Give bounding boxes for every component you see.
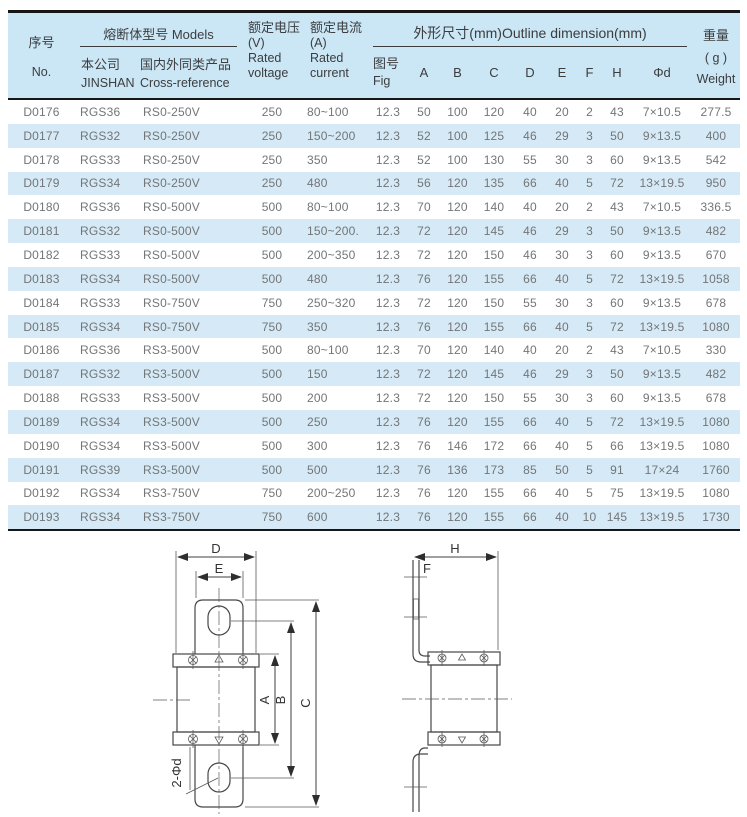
table-cell: 135: [475, 172, 513, 196]
dim-label-h: H: [450, 542, 459, 556]
table-cell: 72: [408, 219, 440, 243]
table-cell: 500: [242, 410, 302, 434]
table-cell: 17×24: [632, 458, 692, 482]
header-rated-voltage: 额定电压 (V) Rated voltage: [242, 13, 302, 98]
table-cell: 120: [440, 195, 475, 219]
header-voltage-zh: 额定电压: [248, 20, 302, 36]
dim-label-c: C: [298, 698, 313, 707]
table-cell: 46: [513, 219, 547, 243]
table-cell: 250: [242, 100, 302, 124]
rivet-marks: [189, 651, 248, 748]
table-cell: 10: [577, 505, 602, 529]
header-voltage-en1: Rated: [248, 51, 302, 66]
table-cell: 155: [475, 482, 513, 506]
table-cell: 46: [513, 362, 547, 386]
table-cell: 3: [577, 362, 602, 386]
table-cell: 70: [408, 338, 440, 362]
table-cell: 120: [440, 505, 475, 529]
table-cell: 72: [408, 386, 440, 410]
slot-edge-mark: [414, 599, 419, 619]
table-cell: 5: [577, 482, 602, 506]
table-cell: 66: [513, 482, 547, 506]
table-cell: RGS33: [75, 148, 138, 172]
table-cell: 155: [475, 410, 513, 434]
table-row: D0189RGS34RS3-500V50025012.3761201556640…: [8, 410, 740, 434]
header-weight: 重量 ( g ) Weight: [692, 13, 740, 98]
dim-label-f: F: [423, 561, 431, 576]
table-cell: RS0-250V: [138, 100, 242, 124]
table-cell: 150: [475, 291, 513, 315]
table-cell: RS3-500V: [138, 338, 242, 362]
table-cell: 30: [547, 148, 577, 172]
table-cell: 50: [602, 362, 632, 386]
table-cell: 146: [440, 434, 475, 458]
table-cell: 91: [602, 458, 632, 482]
table-cell: 150~200: [302, 124, 368, 148]
table-cell: 150~200.: [302, 219, 368, 243]
fuse-body-side: [431, 665, 497, 732]
table-cell: RGS34: [75, 172, 138, 196]
table-cell: 40: [547, 315, 577, 339]
fuse-body: [177, 667, 255, 732]
table-row: D0180RGS36RS0-500V50080~10012.3701201404…: [8, 195, 740, 219]
table-cell: 300: [302, 434, 368, 458]
table-cell: D0183: [8, 267, 75, 291]
table-cell: RGS32: [75, 362, 138, 386]
outline-drawings: D E: [0, 540, 747, 817]
table-cell: 9×13.5: [632, 219, 692, 243]
side-view-drawing: H F: [400, 542, 565, 817]
top-end-cap-side: [428, 652, 500, 665]
header-current-en1: Rated: [310, 51, 368, 66]
table-cell: 3: [577, 148, 602, 172]
table-cell: RS0-250V: [138, 148, 242, 172]
table-cell: 40: [547, 434, 577, 458]
table-cell: 13×19.5: [632, 315, 692, 339]
table-cell: 12.3: [368, 434, 408, 458]
table-cell: 155: [475, 267, 513, 291]
table-cell: 72: [408, 243, 440, 267]
table-cell: RGS36: [75, 100, 138, 124]
table-cell: 7×10.5: [632, 195, 692, 219]
table-cell: RS3-500V: [138, 386, 242, 410]
table-cell: 12.3: [368, 243, 408, 267]
header-models-group: 熔断体型号 Models: [80, 13, 237, 47]
table-cell: 9×13.5: [632, 362, 692, 386]
header-dim-b: B: [440, 47, 475, 98]
table-cell: 125: [475, 124, 513, 148]
table-cell: RS0-500V: [138, 243, 242, 267]
table-cell: 1080: [692, 315, 740, 339]
header-no: 序号 No.: [8, 13, 75, 98]
table-cell: RGS34: [75, 434, 138, 458]
table-cell: 500: [242, 338, 302, 362]
table-cell: RGS34: [75, 505, 138, 529]
table-cell: RS3-500V: [138, 458, 242, 482]
table-cell: D0182: [8, 243, 75, 267]
table-cell: 55: [513, 386, 547, 410]
table-cell: 1058: [692, 267, 740, 291]
table-cell: 12.3: [368, 315, 408, 339]
dim-label-a: A: [257, 695, 272, 704]
table-cell: 40: [513, 100, 547, 124]
table-cell: 72: [408, 291, 440, 315]
table-cell: 5: [577, 172, 602, 196]
table-cell: 120: [440, 172, 475, 196]
fuse-spec-table: 序号 No. 熔断体型号 Models 本公司 JINSHAN 国内外同类产品 …: [8, 10, 740, 531]
table-row: D0183RGS34RS0-500V50048012.3761201556640…: [8, 267, 740, 291]
table-cell: RS0-250V: [138, 172, 242, 196]
table-cell: 120: [440, 243, 475, 267]
header-dim-e: E: [547, 47, 577, 98]
table-cell: 3: [577, 243, 602, 267]
table-cell: 482: [692, 219, 740, 243]
table-cell: 40: [547, 410, 577, 434]
table-row: D0181RGS32RS0-500V500150~200.12.37212014…: [8, 219, 740, 243]
table-cell: 120: [440, 267, 475, 291]
table-cell: D0189: [8, 410, 75, 434]
table-cell: 600: [302, 505, 368, 529]
table-cell: 5: [577, 410, 602, 434]
table-cell: D0180: [8, 195, 75, 219]
table-cell: D0184: [8, 291, 75, 315]
table-cell: 1080: [692, 482, 740, 506]
table-row: D0177RGS32RS0-250V250150~20012.352100125…: [8, 124, 740, 148]
table-cell: RS3-500V: [138, 434, 242, 458]
table-cell: 200~350: [302, 243, 368, 267]
header-weight-en: Weight: [697, 72, 736, 86]
table-row: D0184RGS33RS0-750V750250~32012.372120150…: [8, 291, 740, 315]
table-cell: 750: [242, 482, 302, 506]
header-rated-current: 额定电流 (A) Rated current: [302, 13, 368, 98]
table-cell: 13×19.5: [632, 505, 692, 529]
header-fig: 图号 Fig: [368, 47, 408, 98]
table-cell: 150: [475, 386, 513, 410]
table-cell: 145: [475, 219, 513, 243]
table-cell: 120: [475, 100, 513, 124]
table-cell: RGS34: [75, 315, 138, 339]
table-cell: RGS34: [75, 410, 138, 434]
table-cell: 52: [408, 124, 440, 148]
table-cell: 13×19.5: [632, 172, 692, 196]
header-company-en: JINSHAN: [81, 76, 138, 90]
table-cell: 80~100: [302, 338, 368, 362]
dim-label-d: D: [211, 542, 220, 556]
table-cell: D0191: [8, 458, 75, 482]
table-cell: RGS36: [75, 338, 138, 362]
catalog-page: 序号 No. 熔断体型号 Models 本公司 JINSHAN 国内外同类产品 …: [0, 0, 747, 817]
table-cell: 40: [547, 172, 577, 196]
table-cell: 20: [547, 195, 577, 219]
table-cell: 5: [577, 434, 602, 458]
table-cell: 76: [408, 267, 440, 291]
table-cell: RGS33: [75, 386, 138, 410]
table-cell: 55: [513, 148, 547, 172]
table-cell: 2: [577, 195, 602, 219]
table-cell: 13×19.5: [632, 267, 692, 291]
table-cell: 72: [602, 267, 632, 291]
table-cell: 678: [692, 291, 740, 315]
table-cell: 60: [602, 148, 632, 172]
front-view-drawing: D E: [138, 542, 378, 817]
table-cell: 75: [602, 482, 632, 506]
table-cell: 66: [513, 315, 547, 339]
table-cell: 76: [408, 315, 440, 339]
header-voltage-unit: (V): [248, 36, 302, 51]
table-cell: 12.3: [368, 410, 408, 434]
table-cell: 80~100: [302, 100, 368, 124]
table-cell: 60: [602, 291, 632, 315]
table-cell: 66: [513, 434, 547, 458]
table-cell: 9×13.5: [632, 386, 692, 410]
table-cell: 120: [440, 219, 475, 243]
header-no-en: No.: [32, 65, 51, 79]
table-cell: 3: [577, 291, 602, 315]
table-cell: 12.3: [368, 124, 408, 148]
table-cell: D0181: [8, 219, 75, 243]
table-cell: 750: [242, 505, 302, 529]
table-cell: 76: [408, 434, 440, 458]
table-cell: RS0-500V: [138, 195, 242, 219]
table-cell: 12.3: [368, 338, 408, 362]
table-cell: 1760: [692, 458, 740, 482]
table-cell: 250: [302, 410, 368, 434]
table-cell: 9×13.5: [632, 148, 692, 172]
header-dim-phid: Φd: [632, 47, 692, 98]
table-cell: RS3-500V: [138, 410, 242, 434]
table-cell: 80~100: [302, 195, 368, 219]
table-cell: 72: [602, 410, 632, 434]
table-row: D0182RGS33RS0-500V500200~35012.372120150…: [8, 243, 740, 267]
table-cell: 5: [577, 315, 602, 339]
table-row: D0187RGS32RS3-500V50015012.3721201454629…: [8, 362, 740, 386]
header-company: 本公司 JINSHAN: [75, 47, 138, 98]
table-cell: 12.3: [368, 458, 408, 482]
table-cell: 46: [513, 243, 547, 267]
table-cell: 76: [408, 458, 440, 482]
table-cell: D0187: [8, 362, 75, 386]
table-cell: 155: [475, 315, 513, 339]
table-row: D0179RGS34RS0-250V25048012.3561201356640…: [8, 172, 740, 196]
table-cell: RGS34: [75, 267, 138, 291]
table-cell: RGS32: [75, 219, 138, 243]
table-cell: 40: [513, 338, 547, 362]
table-cell: RS0-750V: [138, 315, 242, 339]
header-crossref-zh: 国内外同类产品: [140, 54, 242, 73]
header-voltage-en2: voltage: [248, 66, 302, 81]
table-cell: 750: [242, 315, 302, 339]
table-cell: 7×10.5: [632, 338, 692, 362]
table-cell: 12.3: [368, 362, 408, 386]
table-cell: 46: [513, 124, 547, 148]
table-row: D0188RGS33RS3-500V50020012.3721201505530…: [8, 386, 740, 410]
table-cell: 12.3: [368, 148, 408, 172]
table-body: D0176RGS36RS0-250V25080~10012.3501001204…: [8, 100, 740, 531]
table-cell: 400: [692, 124, 740, 148]
table-cell: 480: [302, 267, 368, 291]
header-weight-unit: ( g ): [705, 51, 727, 65]
table-cell: D0178: [8, 148, 75, 172]
table-cell: 130: [475, 148, 513, 172]
table-cell: 1080: [692, 410, 740, 434]
table-cell: 13×19.5: [632, 482, 692, 506]
table-cell: 13×19.5: [632, 434, 692, 458]
table-cell: 76: [408, 505, 440, 529]
table-row: D0190RGS34RS3-500V50030012.3761461726640…: [8, 434, 740, 458]
table-cell: 250: [242, 148, 302, 172]
table-cell: 12.3: [368, 291, 408, 315]
table-cell: 120: [440, 338, 475, 362]
bottom-blade-edge: [413, 754, 428, 812]
table-cell: 52: [408, 148, 440, 172]
table-row: D0176RGS36RS0-250V25080~10012.3501001204…: [8, 100, 740, 124]
table-cell: 30: [547, 386, 577, 410]
table-cell: 350: [302, 315, 368, 339]
table-cell: 29: [547, 362, 577, 386]
table-cell: 30: [547, 243, 577, 267]
table-cell: 145: [602, 505, 632, 529]
table-cell: 43: [602, 338, 632, 362]
table-cell: 3: [577, 219, 602, 243]
table-cell: 100: [440, 148, 475, 172]
table-cell: 173: [475, 458, 513, 482]
table-cell: 50: [408, 100, 440, 124]
table-cell: 140: [475, 195, 513, 219]
table-cell: 330: [692, 338, 740, 362]
table-cell: 140: [475, 338, 513, 362]
table-cell: 500: [242, 243, 302, 267]
table-cell: 72: [408, 362, 440, 386]
header-dim-c: C: [475, 47, 513, 98]
table-cell: 66: [513, 267, 547, 291]
table-cell: 500: [242, 458, 302, 482]
table-cell: 336.5: [692, 195, 740, 219]
table-cell: 29: [547, 124, 577, 148]
table-cell: 500: [242, 434, 302, 458]
table-cell: 20: [547, 100, 577, 124]
header-dim-a: A: [408, 47, 440, 98]
table-cell: RS3-500V: [138, 362, 242, 386]
hole-callout-label: 2-Φd: [169, 758, 184, 787]
table-cell: 43: [602, 100, 632, 124]
table-cell: 250: [242, 124, 302, 148]
table-cell: D0179: [8, 172, 75, 196]
table-cell: 40: [547, 482, 577, 506]
table-cell: D0185: [8, 315, 75, 339]
table-cell: 500: [242, 219, 302, 243]
table-cell: RS3-750V: [138, 505, 242, 529]
table-cell: 120: [440, 386, 475, 410]
header-current-en2: current: [310, 66, 368, 81]
table-cell: 12.3: [368, 195, 408, 219]
table-cell: D0192: [8, 482, 75, 506]
table-cell: 55: [513, 291, 547, 315]
header-current-zh: 额定电流: [310, 20, 368, 36]
table-cell: 12.3: [368, 267, 408, 291]
table-cell: RS0-750V: [138, 291, 242, 315]
table-cell: 150: [302, 362, 368, 386]
table-cell: 5: [577, 267, 602, 291]
table-cell: RGS33: [75, 243, 138, 267]
table-cell: 43: [602, 195, 632, 219]
table-cell: 7×10.5: [632, 100, 692, 124]
table-cell: 480: [302, 172, 368, 196]
table-cell: 100: [440, 124, 475, 148]
table-cell: 1730: [692, 505, 740, 529]
table-cell: 1080: [692, 434, 740, 458]
table-cell: 76: [408, 410, 440, 434]
table-cell: 950: [692, 172, 740, 196]
table-cell: 500: [242, 362, 302, 386]
header-crossref: 国内外同类产品 Cross-reference: [138, 47, 242, 98]
header-dim-d: D: [513, 47, 547, 98]
table-cell: 500: [302, 458, 368, 482]
header-dim-h: H: [602, 47, 632, 98]
table-row: D0185RGS34RS0-750V75035012.3761201556640…: [8, 315, 740, 339]
table-cell: RGS39: [75, 458, 138, 482]
table-cell: 12.3: [368, 482, 408, 506]
table-cell: 200~250: [302, 482, 368, 506]
table-cell: 155: [475, 505, 513, 529]
table-cell: 72: [602, 315, 632, 339]
header-company-zh: 本公司: [81, 54, 138, 73]
table-cell: 9×13.5: [632, 124, 692, 148]
table-cell: 12.3: [368, 100, 408, 124]
bottom-end-cap-side: [428, 732, 500, 745]
table-cell: 40: [547, 267, 577, 291]
table-cell: 120: [440, 362, 475, 386]
table-cell: RS0-500V: [138, 267, 242, 291]
table-cell: 136: [440, 458, 475, 482]
table-cell: 12.3: [368, 219, 408, 243]
table-cell: D0176: [8, 100, 75, 124]
table-cell: 60: [602, 386, 632, 410]
dim-label-e: E: [215, 561, 224, 576]
header-current-unit: (A): [310, 36, 368, 51]
table-cell: 3: [577, 124, 602, 148]
table-cell: 3: [577, 386, 602, 410]
table-cell: D0186: [8, 338, 75, 362]
table-cell: RGS34: [75, 482, 138, 506]
table-cell: RS3-750V: [138, 482, 242, 506]
table-cell: 20: [547, 338, 577, 362]
table-cell: 277.5: [692, 100, 740, 124]
table-cell: 72: [602, 172, 632, 196]
header-fig-en: Fig: [373, 73, 408, 89]
header-crossref-en: Cross-reference: [140, 76, 242, 90]
table-cell: 70: [408, 195, 440, 219]
table-cell: 500: [242, 267, 302, 291]
table-cell: 29: [547, 219, 577, 243]
table-cell: D0190: [8, 434, 75, 458]
table-row: D0193RGS34RS3-750V75060012.3761201556640…: [8, 505, 740, 529]
table-cell: 678: [692, 386, 740, 410]
table-cell: 40: [513, 195, 547, 219]
table-cell: 200: [302, 386, 368, 410]
table-cell: 172: [475, 434, 513, 458]
table-cell: 482: [692, 362, 740, 386]
table-cell: 120: [440, 410, 475, 434]
table-cell: 250: [242, 172, 302, 196]
table-cell: 66: [513, 172, 547, 196]
table-cell: 40: [547, 505, 577, 529]
table-row: D0178RGS33RS0-250V25035012.3521001305530…: [8, 148, 740, 172]
table-cell: 250~320: [302, 291, 368, 315]
table-cell: 12.3: [368, 386, 408, 410]
header-fig-zh: 图号: [373, 56, 408, 73]
table-cell: 500: [242, 195, 302, 219]
table-cell: 66: [513, 505, 547, 529]
